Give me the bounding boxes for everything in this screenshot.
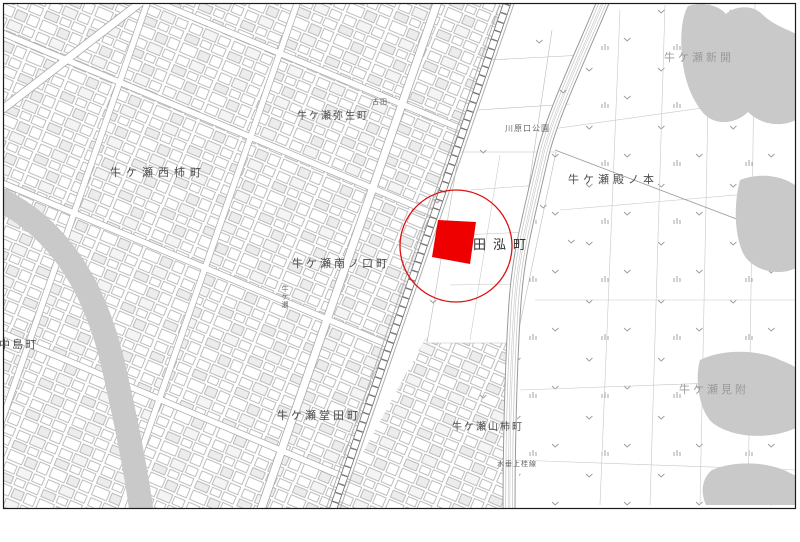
- map-area: 牛ケ瀬新開 牛ケ瀬殿ノ本 牛ケ瀬西柿町 牛ケ瀬南ノ口町 田泓町 牛ケ瀬堂田町 牛…: [0, 0, 800, 510]
- map-print-view: 牛ケ瀬新開 牛ケ瀬殿ノ本 牛ケ瀬西柿町 牛ケ瀬南ノ口町 田泓町 牛ケ瀬堂田町 牛…: [0, 0, 800, 542]
- map-canvas: [0, 0, 800, 510]
- footer: 80m Copyright(C)2025 ZENRIN CO., LTD. 1:…: [0, 510, 800, 542]
- site-highlight-polygon: [432, 220, 476, 264]
